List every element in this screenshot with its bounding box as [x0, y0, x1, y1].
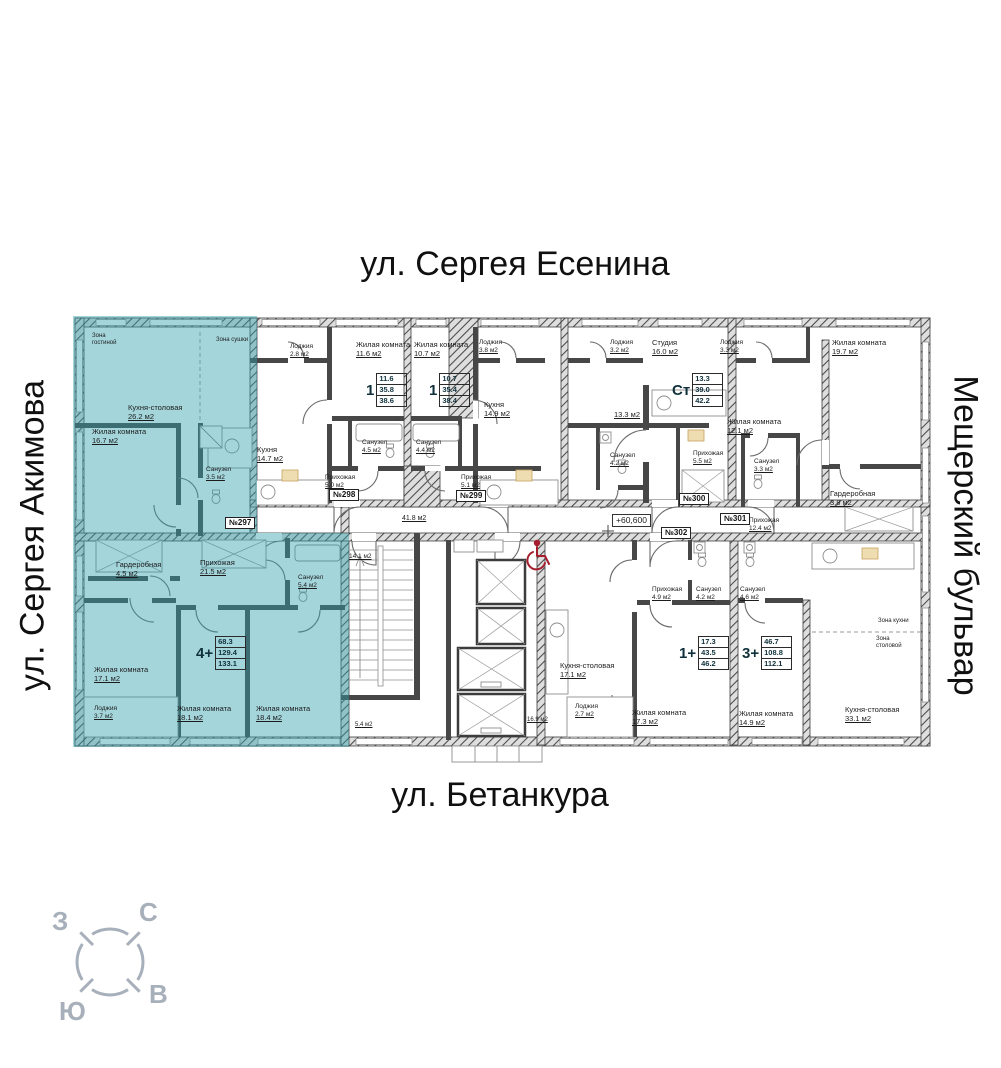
room-label: Санузел 4.2 м2 [696, 586, 721, 601]
room-label: Зона столовой [876, 636, 910, 650]
room-label: 14.1 м2 [349, 553, 372, 561]
room-label: Жилая комната 18.1 м2 [177, 705, 231, 723]
apartment-type: 1+ [679, 645, 696, 662]
room-label: Зона кухни [878, 618, 909, 625]
room-name: Лоджия [720, 339, 743, 347]
room-label: Прихожая 5.5 м2 [693, 450, 723, 465]
room-label: Жилая комната 18.4 м2 [256, 705, 310, 723]
compass-east-label: В [149, 979, 168, 1010]
room-area: 21.5 м2 [200, 568, 235, 577]
room-area: 13.3 м2 [614, 411, 640, 420]
room-area: 4.2 м2 [696, 594, 721, 602]
apartment-type: 1 [366, 382, 374, 399]
apartment-type-label[interactable]: 4+ 68.3 129.4 133.1 [196, 637, 246, 670]
apartment-type-label[interactable]: Ст 13.3 39.0 42.2 [672, 374, 723, 407]
apartment-number: №299 [460, 491, 482, 500]
room-name: Санузел [696, 586, 721, 594]
room-label: Гардеробная 3.8 м2 [830, 490, 875, 508]
apartment-number: №298 [333, 490, 355, 499]
room-area: 14.7 м2 [257, 455, 283, 464]
room-label: Гардеробная 4.5 м2 [116, 561, 161, 579]
room-name: Санузел [610, 452, 635, 460]
apartment-type: 4+ [196, 645, 213, 662]
room-name: Зона сушки [216, 337, 248, 344]
room-area: 18.1 м2 [177, 714, 231, 723]
room-label: Санузел 4.4 м2 [416, 439, 441, 454]
room-area: 12.1 м2 [727, 427, 781, 436]
room-label: Прихожая 5.1 м2 [461, 474, 491, 489]
room-label: Зона сушки [216, 337, 248, 344]
room-area: 5.5 м2 [693, 458, 723, 466]
room-label: Прихожая 12.4 м2 [749, 517, 779, 532]
room-area: 17.3 м2 [632, 718, 686, 727]
room-area: 16.0 м2 [652, 348, 678, 357]
street-label-top: ул. Сергея Есенина [325, 245, 705, 284]
elevation-mark: +60,600 [612, 514, 651, 527]
room-area: 17.1 м2 [560, 671, 614, 680]
apartment-number: №302 [665, 528, 687, 537]
room-label: 13.3 м2 [614, 411, 640, 420]
room-name: Лоджия [94, 705, 117, 713]
room-label: 16.9 м2 [527, 717, 548, 724]
room-name: Зона столовой [876, 636, 910, 650]
room-area: 33.1 м2 [845, 715, 899, 724]
apartment-number-tag[interactable]: №300 [679, 493, 709, 505]
room-label: Жилая комната 11.6 м2 [356, 341, 410, 359]
room-label: Санузел 4.6 м2 [740, 586, 765, 601]
room-label: Жилая комната 10.7 м2 [414, 341, 468, 359]
room-area: 12.4 м2 [749, 525, 779, 533]
apartment-type-label[interactable]: 1+ 17.3 43.5 46.2 [679, 637, 729, 670]
room-area: 16.7 м2 [92, 437, 146, 446]
room-name: Прихожая [325, 474, 355, 482]
room-area: 10.7 м2 [414, 350, 468, 359]
room-area: 5.4 м2 [355, 722, 372, 729]
room-label: Лоджия 3.8 м2 [479, 339, 502, 354]
room-label: Жилая комната 16.7 м2 [92, 428, 146, 446]
room-area: 3.8 м2 [479, 347, 502, 355]
apartment-areas: 68.3 129.4 133.1 [215, 637, 246, 670]
room-area: 26.2 м2 [128, 413, 182, 422]
room-label: Кухня 14.7 м2 [257, 446, 283, 464]
room-area: 14.9 м2 [739, 719, 793, 728]
apartment-areas: 10.7 35.4 38.4 [439, 374, 470, 407]
apartment-number: №300 [683, 494, 705, 503]
room-area: 4.4 м2 [416, 447, 441, 455]
room-area: 3.5 м2 [206, 474, 231, 482]
apartment-type-label[interactable]: 1 10.7 35.4 38.4 [429, 374, 470, 407]
room-label: Кухня-столовая 26.2 м2 [128, 404, 182, 422]
room-label: Санузел 4.2 м2 [610, 452, 635, 467]
room-label: Лоджия 3.3 м2 [720, 339, 743, 354]
street-label-bottom: ул. Бетанкура [310, 776, 690, 815]
room-name: Лоджия [290, 343, 313, 351]
room-label: Жилая комната 17.1 м2 [94, 666, 148, 684]
apartment-type-label[interactable]: 1 11.6 35.8 38.6 [366, 374, 407, 407]
apartment-areas: 11.6 35.8 38.6 [376, 374, 407, 407]
room-label: Жилая комната 19.7 м2 [832, 339, 886, 357]
room-area: 3.3 м2 [754, 466, 779, 474]
room-area: 5.4 м2 [298, 582, 323, 590]
room-label: 41.8 м2 [402, 515, 426, 523]
apartment-number: №301 [724, 514, 746, 523]
apartment-area-total: 38.4 [439, 395, 470, 407]
room-area: 4.5 м2 [362, 447, 387, 455]
room-name: Санузел [298, 574, 323, 582]
room-name: Санузел [416, 439, 441, 447]
apartment-area-total: 133.1 [215, 658, 246, 670]
floorplan-canvas: ул. Сергея Есенина ул. Сергея Акимова Ме… [0, 0, 1001, 1068]
room-label: Санузел 5.4 м2 [298, 574, 323, 589]
compass-west-label: З [52, 906, 68, 937]
room-label: Жилая комната 12.1 м2 [727, 418, 781, 436]
apartment-number: №297 [229, 518, 251, 527]
room-name: Прихожая [749, 517, 779, 525]
room-name: Санузел [362, 439, 387, 447]
apartment-number-tag[interactable]: №299 [456, 490, 486, 502]
apartment-type: 1 [429, 382, 437, 399]
room-name: Лоджия [479, 339, 502, 347]
room-area: 18.4 м2 [256, 714, 310, 723]
room-name: Прихожая [461, 474, 491, 482]
room-label: Санузел 3.5 м2 [206, 466, 231, 481]
room-area: 2.8 м2 [290, 351, 313, 359]
room-name: Прихожая [652, 586, 682, 594]
room-area: 16.9 м2 [527, 717, 548, 724]
room-label: Кухня 14.9 м2 [484, 401, 510, 419]
apartment-area-total: 112.1 [761, 658, 792, 670]
room-label: Санузел 3.3 м2 [754, 458, 779, 473]
room-label: 5.4 м2 [355, 722, 372, 729]
apartment-area-total: 42.2 [692, 395, 723, 407]
room-label: Прихожая 4.9 м2 [652, 586, 682, 601]
room-label: Жилая комната 17.3 м2 [632, 709, 686, 727]
apartment-number-tag[interactable]: №298 [329, 489, 359, 501]
apartment-number-tag[interactable]: №302 [661, 527, 691, 539]
room-label: Лоджия 2.8 м2 [290, 343, 313, 358]
room-label: Лоджия 3.2 м2 [610, 339, 633, 354]
apartment-type-label[interactable]: 3+ 46.7 108.8 112.1 [742, 637, 792, 670]
room-area: 17.1 м2 [94, 675, 148, 684]
room-area: 19.7 м2 [832, 348, 886, 357]
apartment-areas: 13.3 39.0 42.2 [692, 374, 723, 407]
room-area: 3.7 м2 [94, 713, 117, 721]
room-label: Кухня-столовая 17.1 м2 [560, 662, 614, 680]
room-name: Санузел [206, 466, 231, 474]
room-area: 4.5 м2 [116, 570, 161, 579]
room-label: Лоджия 2.7 м2 [575, 703, 598, 718]
apartment-area-total: 46.2 [698, 658, 729, 670]
room-name: Лоджия [610, 339, 633, 347]
room-label: Прихожая 5.0 м2 [325, 474, 355, 489]
apartment-type: 3+ [742, 645, 759, 662]
apartment-areas: 17.3 43.5 46.2 [698, 637, 729, 670]
room-area: 4.6 м2 [740, 594, 765, 602]
room-area: 41.8 м2 [402, 515, 426, 523]
room-label: Кухня-столовая 33.1 м2 [845, 706, 899, 724]
apartment-number-tag[interactable]: №297 [225, 517, 255, 529]
compass-icon [77, 929, 143, 995]
room-label: Прихожая 21.5 м2 [200, 559, 235, 577]
room-name: Лоджия [575, 703, 598, 711]
room-area: 14.9 м2 [484, 410, 510, 419]
room-area: 14.1 м2 [349, 553, 372, 561]
room-area: 5.1 м2 [461, 482, 491, 490]
apartment-area-total: 38.6 [376, 395, 407, 407]
room-name: Прихожая [693, 450, 723, 458]
room-area: 4.2 м2 [610, 460, 635, 468]
room-name: Зона кухни [878, 618, 909, 625]
room-name: Санузел [754, 458, 779, 466]
apartment-number-tag[interactable]: №301 [720, 513, 750, 525]
room-name: Санузел [740, 586, 765, 594]
room-area: 3.2 м2 [610, 347, 633, 355]
room-label: Жилая комната 14.9 м2 [739, 710, 793, 728]
room-label: Студия 16.0 м2 [652, 339, 678, 357]
room-area: 11.6 м2 [356, 350, 410, 359]
compass-north-label: С [139, 897, 158, 928]
apartment-type: Ст [672, 382, 690, 399]
apartment-areas: 46.7 108.8 112.1 [761, 637, 792, 670]
room-name: Зона гостиной [92, 333, 126, 347]
compass-south-label: Ю [59, 996, 86, 1027]
room-area: 3.3 м2 [720, 347, 743, 355]
room-label: Зона гостиной [92, 333, 126, 347]
room-label: Санузел 4.5 м2 [362, 439, 387, 454]
room-label: Лоджия 3.7 м2 [94, 705, 117, 720]
room-area: 2.7 м2 [575, 711, 598, 719]
room-area: 3.8 м2 [830, 499, 875, 508]
street-label-left: ул. Сергея Акимова [14, 346, 53, 726]
street-label-right: Мещерский бульвар [946, 346, 985, 726]
room-area: 4.9 м2 [652, 594, 682, 602]
